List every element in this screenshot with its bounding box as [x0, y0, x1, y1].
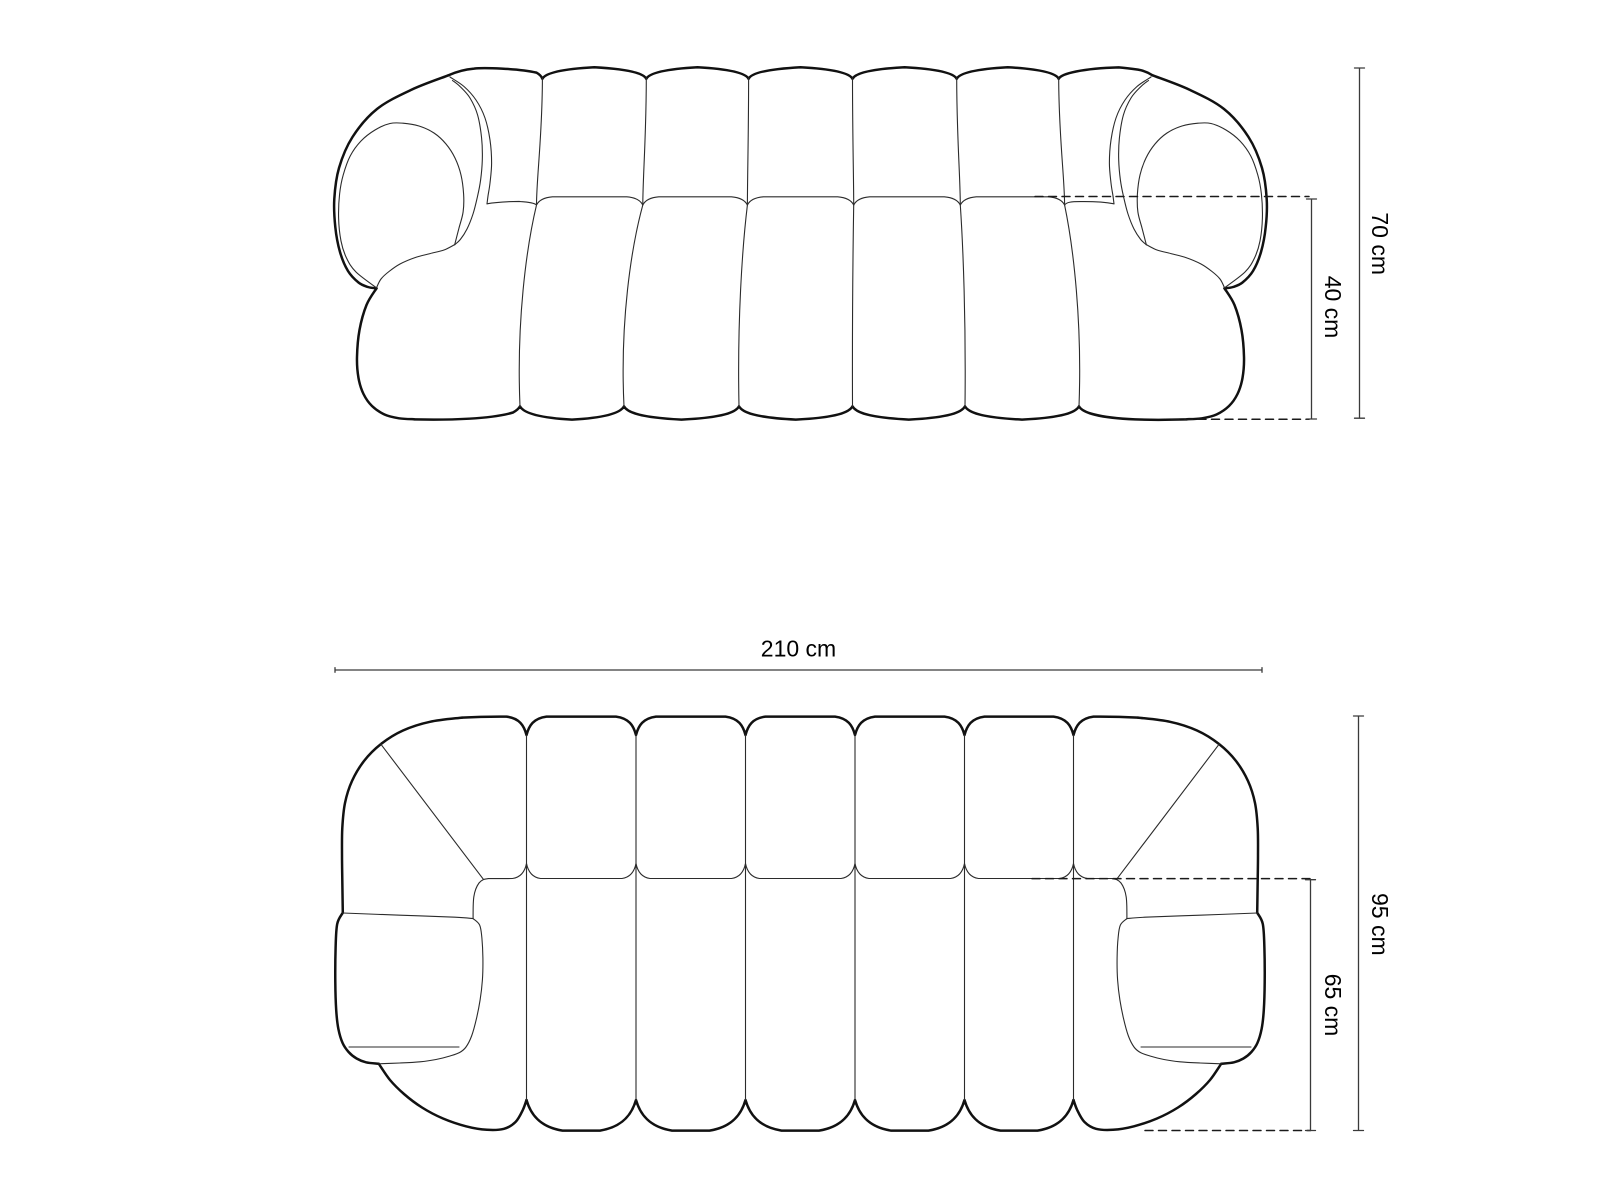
svg-text:95 cm: 95 cm — [1367, 893, 1393, 956]
svg-text:65 cm: 65 cm — [1320, 974, 1346, 1037]
svg-text:210 cm: 210 cm — [761, 636, 836, 662]
svg-text:40 cm: 40 cm — [1320, 276, 1346, 339]
svg-text:70 cm: 70 cm — [1367, 212, 1393, 275]
